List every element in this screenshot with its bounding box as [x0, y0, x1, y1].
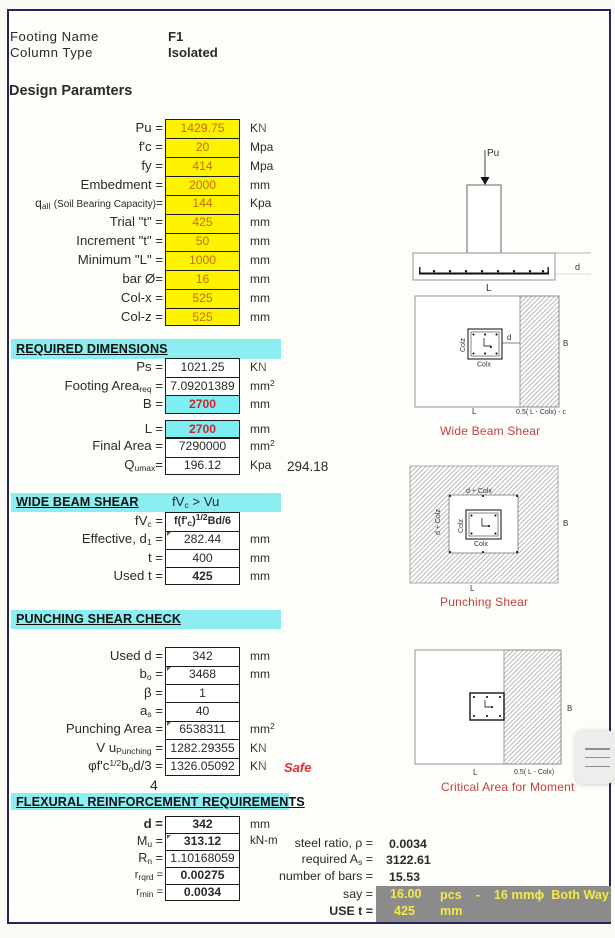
svg-text:L: L — [486, 283, 492, 294]
svg-text:B: B — [567, 704, 572, 713]
svg-text:B: B — [563, 339, 568, 348]
svg-text:d + Colz: d + Colz — [435, 509, 442, 535]
svg-text:L: L — [472, 407, 477, 416]
svg-text:Colz: Colz — [458, 518, 465, 533]
svg-text:d: d — [575, 262, 580, 272]
svg-text:Colx: Colx — [477, 362, 492, 369]
svg-text:B: B — [563, 519, 568, 528]
svg-text:d: d — [507, 333, 511, 342]
svg-text:0.5( L - Colx) - c: 0.5( L - Colx) - c — [516, 409, 566, 416]
svg-text:d + Colx: d + Colx — [466, 488, 492, 495]
svg-text:L: L — [473, 768, 478, 777]
svg-text:Colz: Colz — [460, 337, 467, 352]
svg-text:L: L — [470, 584, 475, 593]
svg-text:Pu: Pu — [487, 148, 499, 159]
svg-text:Colx: Colx — [474, 541, 489, 548]
svg-text:0.5( L - Colx): 0.5( L - Colx) — [514, 769, 554, 776]
